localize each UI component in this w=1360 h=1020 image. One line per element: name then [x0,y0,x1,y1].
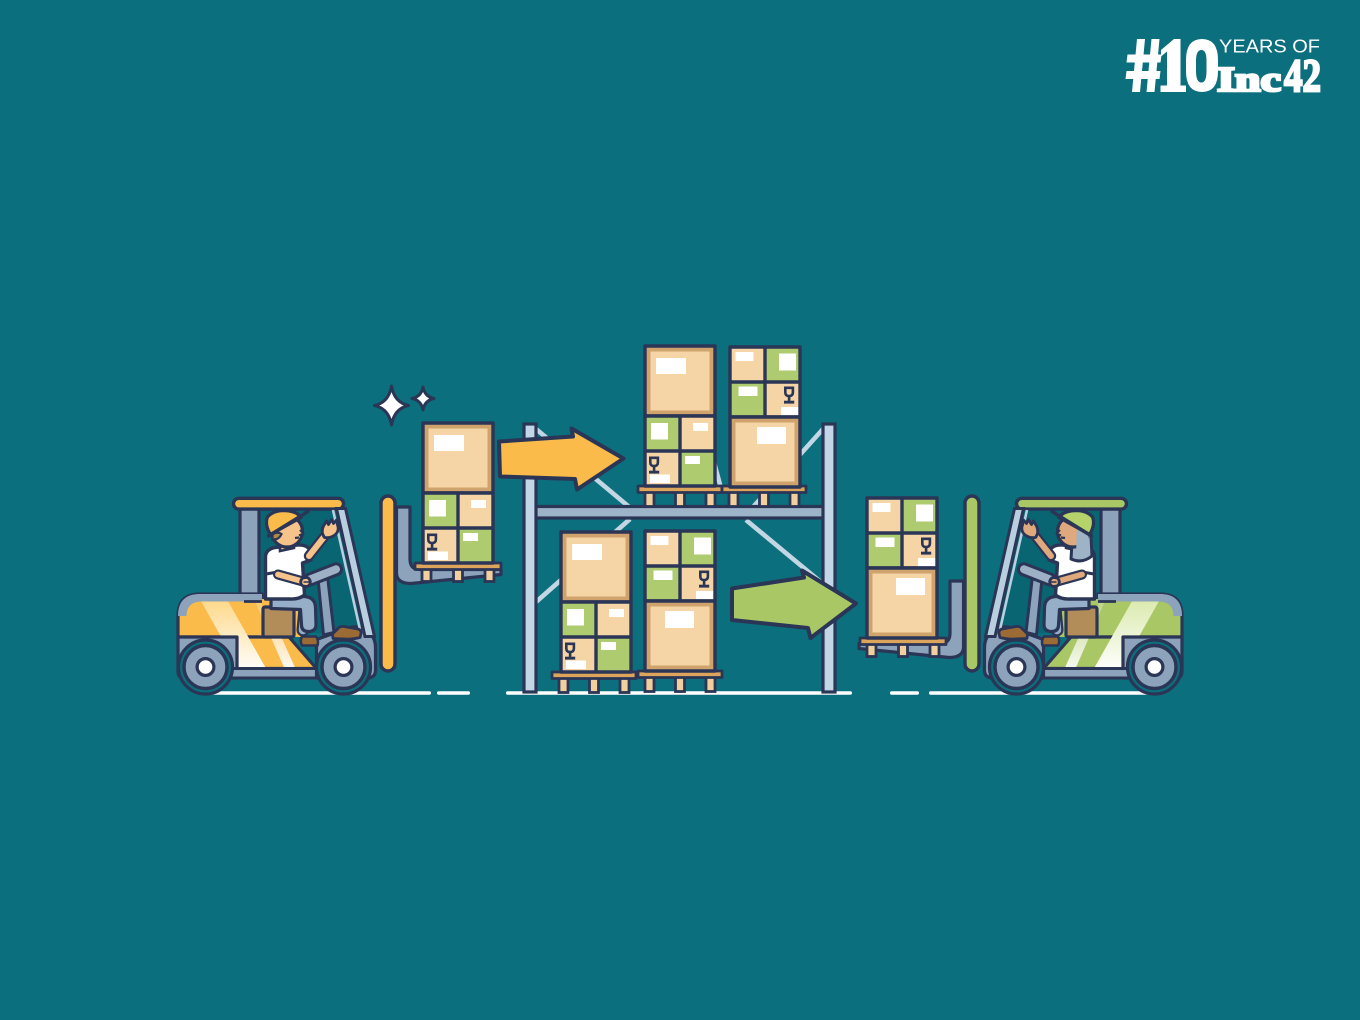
svg-text:42: 42 [1284,50,1321,102]
svg-text:Inc: Inc [1217,60,1281,99]
